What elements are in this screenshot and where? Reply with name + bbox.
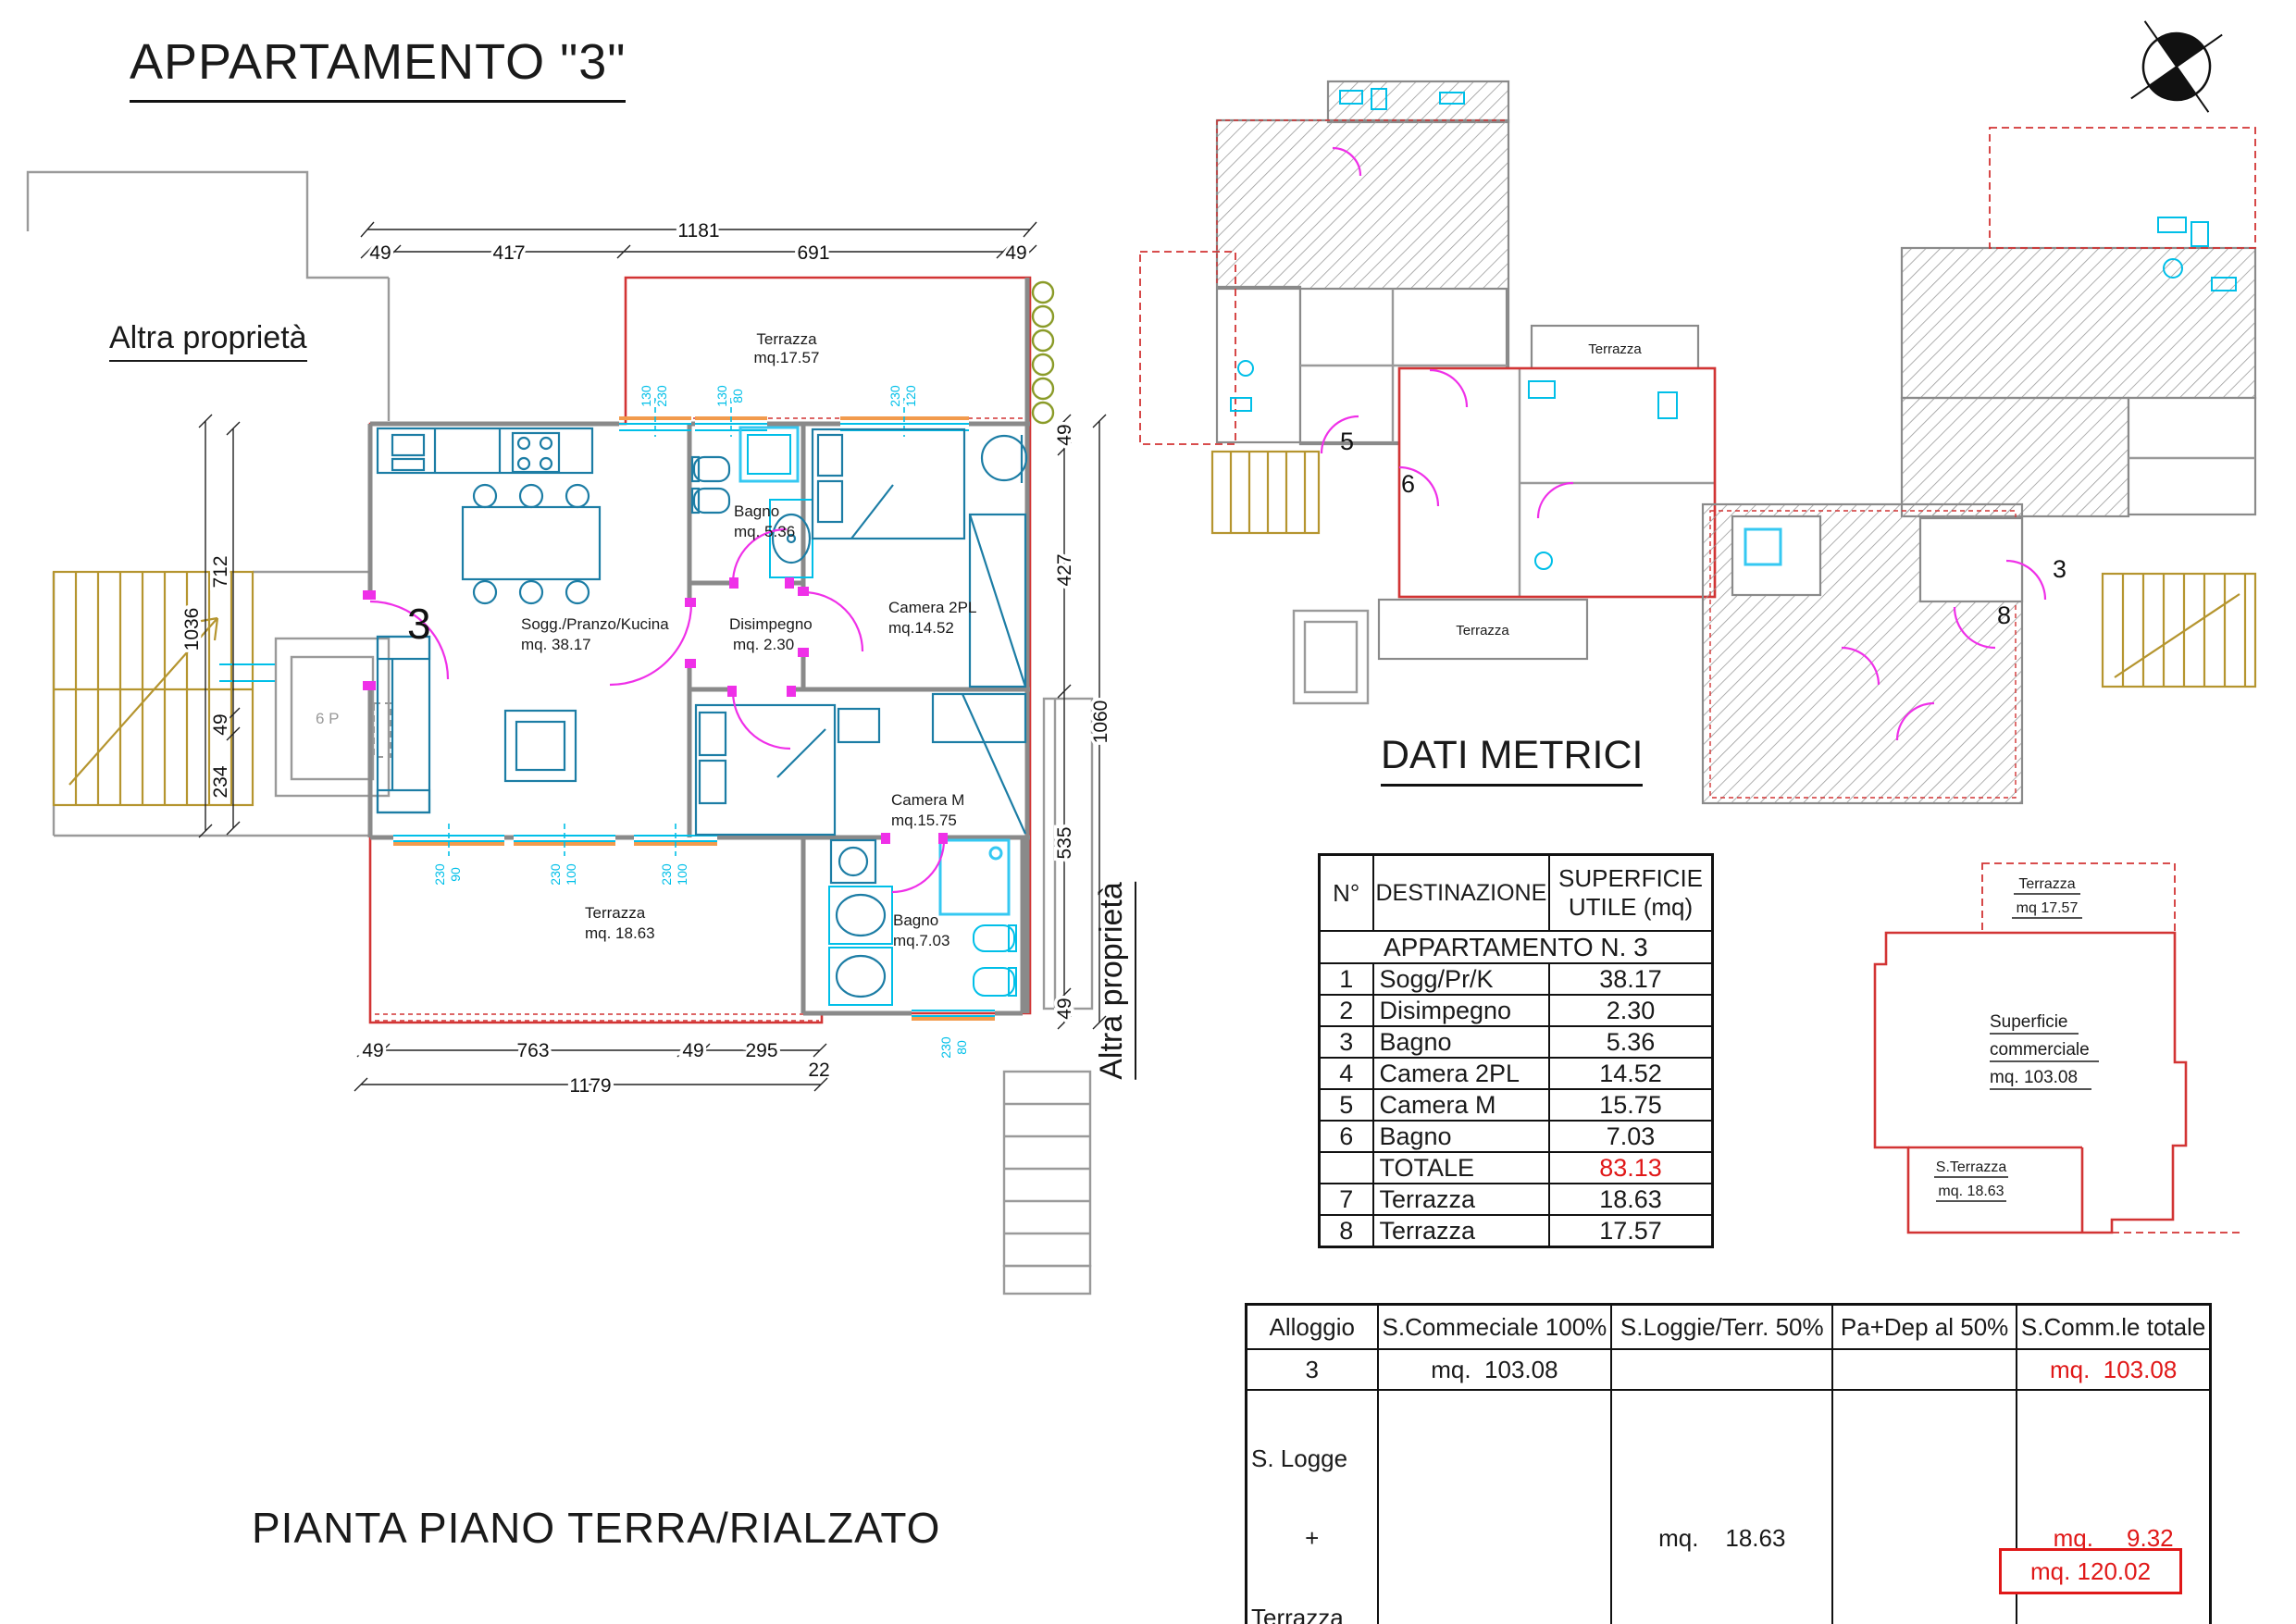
- cell-n: 6: [1320, 1121, 1373, 1152]
- cell-val-totale: 83.13: [1549, 1152, 1712, 1184]
- bedroom-m-area: mq.15.75: [891, 812, 957, 829]
- keyplan-terrace-label-2: Terrazza: [1456, 623, 1509, 638]
- bedroom-m-name: Camera M: [891, 791, 964, 809]
- summary-header: Alloggio: [1247, 1305, 1378, 1350]
- elevator: 6 P: [276, 638, 391, 796]
- bedroom-2pl-name: Camera 2PL: [888, 599, 976, 616]
- col-header-superficie-line1: SUPERFICIE: [1552, 864, 1709, 893]
- dim-label: 49: [369, 242, 391, 264]
- commercial-surface-diagram: Terrazza mq 17.57 Superficie commerciale…: [1875, 863, 2240, 1233]
- win-dim: 130: [714, 385, 729, 407]
- dim-label: 712: [210, 555, 231, 588]
- cell-loggie: mq. 18.63: [1611, 1390, 1832, 1624]
- dim-label: 49: [210, 713, 231, 735]
- cell-n: 5: [1320, 1089, 1373, 1121]
- cell-dest: Camera 2PL: [1373, 1058, 1550, 1089]
- summary-header: S.Comm.le totale: [2017, 1305, 2211, 1350]
- terrace-bottom-area: mq. 18.63: [585, 924, 655, 942]
- cell-line: Terrazza: [1251, 1605, 1373, 1624]
- dim-label: 295: [745, 1040, 777, 1061]
- drawing-sheet: 6 P: [0, 0, 2296, 1624]
- red-dashed-boundary: [1990, 128, 2255, 248]
- cell-n: 1: [1320, 963, 1373, 995]
- sofa: [378, 637, 576, 812]
- dim-label: 49: [1054, 998, 1075, 1019]
- key-plan: Terrazza Terrazza: [1140, 81, 2255, 803]
- win-dim: 230: [432, 863, 447, 886]
- summary-header: Pa+Dep al 50%: [1832, 1305, 2017, 1350]
- cell-n: 3: [1320, 1026, 1373, 1058]
- bathroom1-area: mq. 5.36: [734, 523, 795, 540]
- diagram-label-1: Superficie: [1990, 1012, 2068, 1032]
- dim-label: 1179: [569, 1075, 611, 1097]
- keyplan-rooms: [1217, 289, 1300, 442]
- dim-label: 1181: [677, 220, 719, 242]
- other-property-label-right: Altra proprietà: [1094, 882, 1136, 1080]
- cell-empty: [1378, 1390, 1612, 1624]
- dim-label: 1036: [181, 608, 203, 651]
- cell-n: 2: [1320, 995, 1373, 1026]
- dim-label: 763: [516, 1040, 549, 1061]
- hatched-block: [1902, 398, 2128, 516]
- cell-alloggio: 3: [1247, 1349, 1378, 1390]
- grand-total-cell: mq. 120.02: [1999, 1548, 2182, 1594]
- bedroom-m-furniture: [696, 694, 1025, 835]
- keyplan-rooms: [2128, 398, 2255, 514]
- summary-row-1: 3 mq. 103.08 mq. 103.08: [1247, 1349, 2211, 1390]
- col-header-superficie: SUPERFICIE UTILE (mq): [1549, 855, 1712, 932]
- cell-val: 15.75: [1549, 1089, 1712, 1121]
- win-dim: 130: [639, 385, 653, 407]
- walls: [370, 278, 1030, 1013]
- table-row: 6Bagno7.03: [1320, 1121, 1713, 1152]
- kitchen: [378, 428, 592, 473]
- win-dim: 100: [675, 863, 689, 886]
- sheet-title: APPARTAMENTO "3": [130, 33, 626, 103]
- terrace-bottom-name: Terrazza: [585, 904, 646, 922]
- summary-header-row: Alloggio S.Commeciale 100% S.Loggie/Terr…: [1247, 1305, 2211, 1350]
- dim-label: 417: [492, 242, 525, 264]
- table-row: 5Camera M15.75: [1320, 1089, 1713, 1121]
- cell-dest: Disimpegno: [1373, 995, 1550, 1026]
- dim-label: 49: [1054, 424, 1075, 445]
- dim-label: 535: [1054, 826, 1075, 859]
- diagram-terrace-bottom-2: mq. 18.63: [1938, 1184, 2004, 1199]
- dim-label: 427: [1054, 553, 1075, 586]
- hallway-name: Disimpegno: [729, 615, 813, 633]
- bathroom1-name: Bagno: [734, 502, 779, 520]
- cell-dest: Sogg/Pr/K: [1373, 963, 1550, 995]
- win-dim: 230: [548, 863, 563, 886]
- hallway-area: mq. 2.30: [733, 636, 794, 653]
- keyplan-terrace-label-1: Terrazza: [1588, 341, 1642, 357]
- dim-label: 234: [210, 765, 231, 798]
- cell-val: 2.30: [1549, 995, 1712, 1026]
- diagram-terrace-top-2: mq 17.57: [2017, 900, 2079, 916]
- diagram-terrace-bottom-1: S.Terrazza: [1936, 1159, 2007, 1175]
- bedroom-2pl-area: mq.14.52: [888, 619, 954, 637]
- cell-val: 17.57: [1549, 1215, 1712, 1247]
- cell-empty: [1832, 1349, 2017, 1390]
- win-dim: 230: [938, 1036, 953, 1059]
- cell-commerciale: mq. 103.08: [1378, 1349, 1612, 1390]
- cell-val: 7.03: [1549, 1121, 1712, 1152]
- cell-n: [1320, 1152, 1373, 1184]
- neighbor-structures: [1004, 699, 1092, 1294]
- north-compass-icon: [2099, 0, 2253, 144]
- win-dim: 80: [730, 389, 745, 403]
- plan-caption: PIANTA PIANO TERRA/RIALZATO: [252, 1503, 940, 1553]
- table-row: 8Terrazza17.57: [1320, 1215, 1713, 1247]
- table-row: 2Disimpegno2.30: [1320, 995, 1713, 1026]
- unit-number-3: 3: [2053, 555, 2066, 583]
- cell-n: 7: [1320, 1184, 1373, 1215]
- cell-n: 4: [1320, 1058, 1373, 1089]
- table-row-totale: TOTALE83.13: [1320, 1152, 1713, 1184]
- cell-val: 14.52: [1549, 1058, 1712, 1089]
- summary-header: S.Commeciale 100%: [1378, 1305, 1612, 1350]
- hatched-block: [1902, 248, 2255, 398]
- cell-line: S. Logge: [1251, 1445, 1373, 1472]
- plants: [1033, 282, 1053, 423]
- elevator-label: 6 P: [316, 710, 340, 727]
- win-dim: 230: [887, 385, 902, 407]
- dim-label: 691: [797, 242, 829, 264]
- win-dim: 230: [659, 863, 674, 886]
- cell-empty: [1611, 1349, 1832, 1390]
- dim-label: 49: [362, 1040, 383, 1061]
- win-dim: 120: [903, 385, 918, 407]
- diagram-terrace-top-1: Terrazza: [2018, 876, 2075, 892]
- cell-logge-terrazza: S. Logge + Terrazza: [1247, 1390, 1378, 1624]
- terrace-top-area: mq.17.57: [754, 349, 820, 366]
- cell-total: mq. 103.08: [2017, 1349, 2211, 1390]
- table-row: 3Bagno5.36: [1320, 1026, 1713, 1058]
- unit-number-8: 8: [1997, 601, 2011, 629]
- cell-dest: Terrazza: [1373, 1215, 1550, 1247]
- dining-table: [463, 485, 600, 603]
- cell-empty: [1832, 1390, 2017, 1624]
- cell-dest: Terrazza: [1373, 1184, 1550, 1215]
- living-area: mq. 38.17: [521, 636, 591, 653]
- hatched-block: [1328, 81, 1508, 122]
- cell-dest: Camera M: [1373, 1089, 1550, 1121]
- table-row: 7Terrazza18.63: [1320, 1184, 1713, 1215]
- diagram-label-2: commerciale: [1990, 1040, 2090, 1060]
- dimension-lines: 1181 49 417 691 49 49 427 535 49 1060 49…: [181, 220, 1111, 1097]
- bathroom2-area: mq.7.03: [893, 932, 949, 949]
- win-dim: 80: [954, 1040, 969, 1055]
- win-dim: 100: [564, 863, 578, 886]
- unit-number-5: 5: [1340, 428, 1354, 455]
- entrance-window: [219, 664, 275, 681]
- section-header: APPARTAMENTO N. 3: [1320, 931, 1713, 963]
- dim-label: 22: [808, 1060, 829, 1081]
- terrace-top-name: Terrazza: [756, 330, 817, 348]
- dim-label: 49: [682, 1040, 703, 1061]
- dati-metrici-table: N° DESTINAZIONE SUPERFICIE UTILE (mq) AP…: [1318, 853, 1714, 1248]
- cell-dest: Bagno: [1373, 1121, 1550, 1152]
- dati-metrici-heading: DATI METRICI: [1381, 733, 1643, 787]
- entry-number: 3: [407, 600, 431, 648]
- dim-label: 1060: [1090, 700, 1111, 744]
- bedroom-2pl-furniture: [813, 429, 1026, 687]
- cell-val: 18.63: [1549, 1184, 1712, 1215]
- table-row: 1Sogg/Pr/K38.17: [1320, 963, 1713, 995]
- win-dim: 90: [448, 867, 463, 882]
- cell-dest: TOTALE: [1373, 1152, 1550, 1184]
- living-name: Sogg./Pranzo/Kucina: [521, 615, 669, 633]
- summary-header: S.Loggie/Terr. 50%: [1611, 1305, 1832, 1350]
- col-header-n: N°: [1320, 855, 1373, 932]
- cell-val: 38.17: [1549, 963, 1712, 995]
- col-header-destinazione: DESTINAZIONE: [1373, 855, 1550, 932]
- bathroom2-name: Bagno: [893, 911, 938, 929]
- unit-number-6: 6: [1401, 470, 1415, 498]
- other-property-label-left: Altra proprietà: [109, 320, 307, 362]
- cell-dest: Bagno: [1373, 1026, 1550, 1058]
- win-dim: 230: [654, 385, 669, 407]
- cell-val: 5.36: [1549, 1026, 1712, 1058]
- dim-label: 49: [1005, 242, 1026, 264]
- cell-line: +: [1251, 1525, 1373, 1552]
- diagram-label-3: mq. 103.08: [1990, 1068, 2078, 1087]
- col-header-superficie-line2: UTILE (mq): [1552, 893, 1709, 922]
- cell-n: 8: [1320, 1215, 1373, 1247]
- table-row: 4Camera 2PL14.52: [1320, 1058, 1713, 1089]
